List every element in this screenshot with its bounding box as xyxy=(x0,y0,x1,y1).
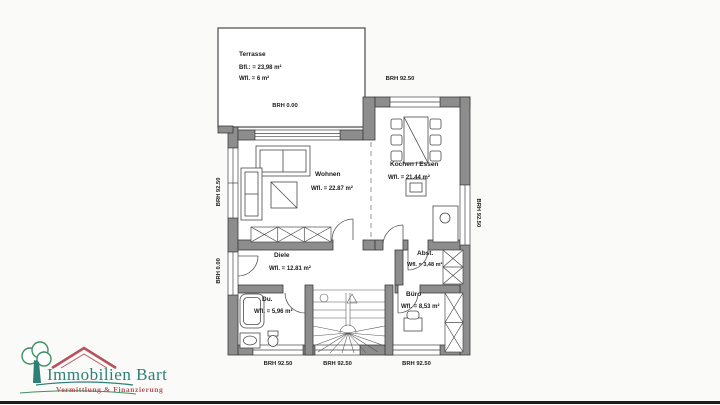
sill-label-bottom-du: BRH 92.50 xyxy=(253,362,303,368)
room-area-abstellraum: Wfl. = 3,48 m² xyxy=(407,263,442,269)
scanned-floor-plan-page: Terrasse Bfl.: = 23,98 m² Wfl. = 6 m² BR… xyxy=(0,0,720,405)
logo-company-name: Immobilien Bart xyxy=(47,366,167,383)
room-label-buero: Büro xyxy=(406,292,421,299)
room-area-buero: Wfl. = 8,53 m² xyxy=(401,304,440,310)
sill-label-bottom-buero: BRH 92.50 xyxy=(393,362,440,368)
room-label-dusche: Du. xyxy=(262,297,272,304)
room-area-kochen-essen: Wfl. = 21.44 m² xyxy=(388,175,430,181)
scan-edge-line xyxy=(0,401,720,404)
room-area-terrasse-wfl: Wfl. = 6 m² xyxy=(239,76,269,82)
office-desk-and-chair xyxy=(404,311,422,331)
storage-shelves xyxy=(443,250,463,352)
floor-plan-drawing xyxy=(0,0,720,405)
room-label-diele: Diele xyxy=(274,253,290,260)
room-label-terrasse: Terrasse xyxy=(239,52,266,59)
room-area-dusche: Wfl. = 5,96 m² xyxy=(254,309,293,315)
sill-label-bottom-stair: BRH 92.50 xyxy=(315,362,360,368)
sill-label-kitchen-top: BRH 92.50 xyxy=(370,77,430,83)
room-label-wohnen: Wohnen xyxy=(315,172,341,179)
sill-label-left-window: BRH 92.50 xyxy=(217,169,223,215)
room-area-terrasse-bfl: Bfl.: = 23,98 m² xyxy=(239,65,282,71)
room-area-diele: Wfl. = 12.81 m² xyxy=(269,266,311,272)
sill-label-left-door: BRH 0.00 xyxy=(217,251,223,291)
logo-tagline: Vermittlung & Finanzierung xyxy=(56,386,163,394)
room-area-wohnen: Wfl. = 22.87 m² xyxy=(311,186,353,192)
wardrobe-cabinet xyxy=(251,227,331,242)
room-label-abstellraum: Abst. xyxy=(417,251,433,258)
sill-label-terrace-door: BRH 0.00 xyxy=(250,104,320,110)
sill-label-right-window: BRH 92.50 xyxy=(474,190,480,236)
room-label-kochen-essen: Kochen / Essen xyxy=(390,162,438,169)
